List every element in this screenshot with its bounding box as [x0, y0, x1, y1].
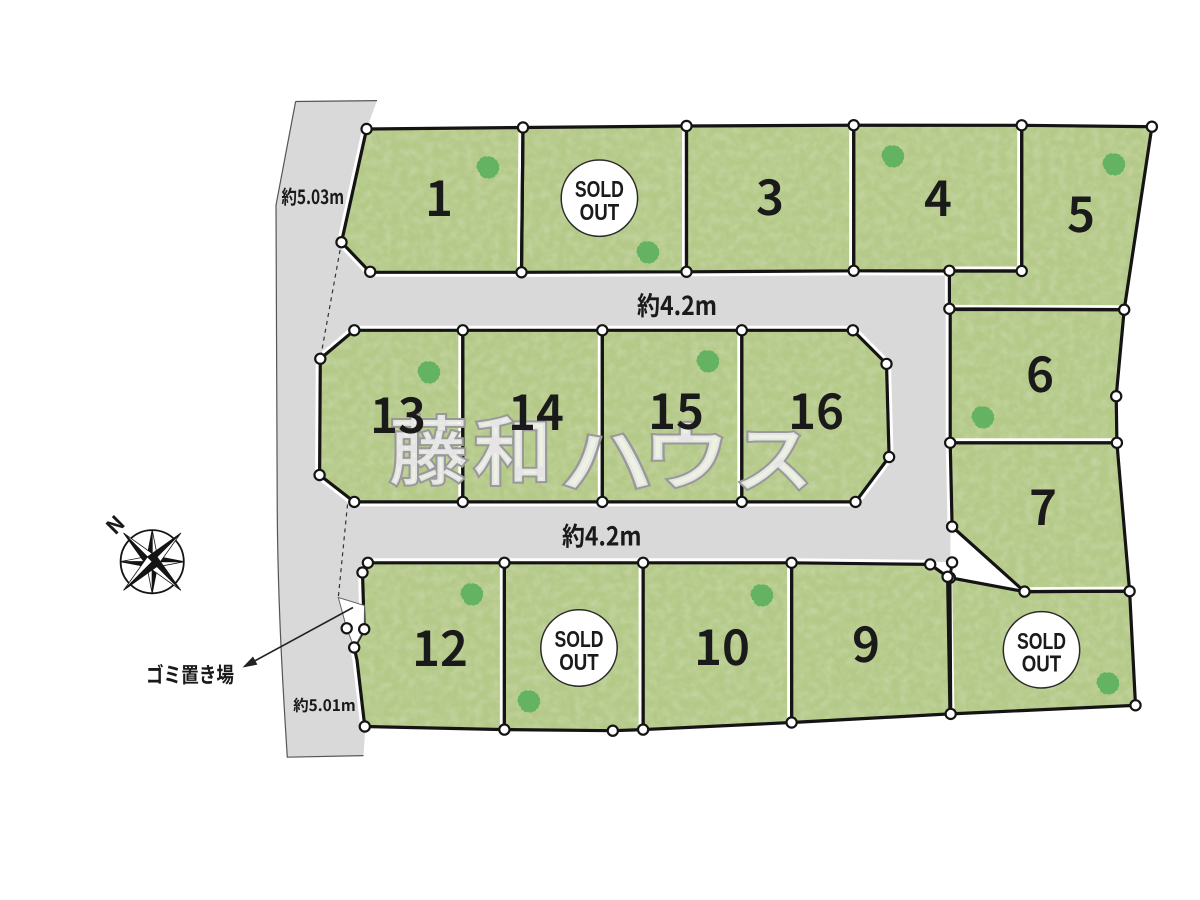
svg-text:OUT: OUT: [559, 649, 599, 675]
svg-text:OUT: OUT: [580, 199, 620, 225]
svg-text:OUT: OUT: [1022, 651, 1062, 677]
